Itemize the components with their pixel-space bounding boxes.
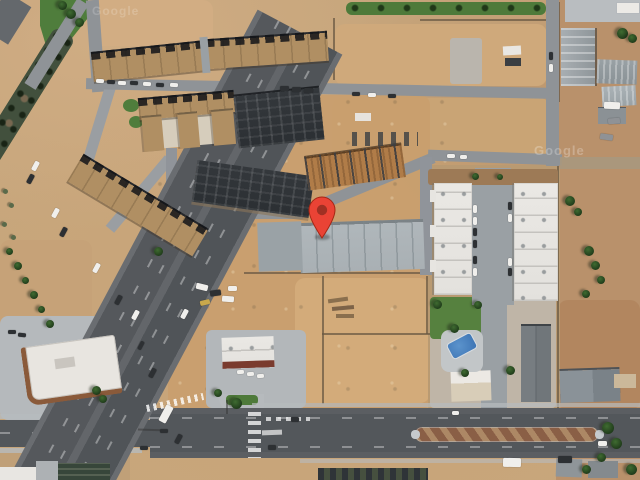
car xyxy=(31,160,40,171)
tree xyxy=(450,324,459,333)
restaurant-building xyxy=(221,336,274,369)
car xyxy=(92,262,101,273)
tree xyxy=(461,369,469,377)
parked-car xyxy=(473,256,477,264)
parked-car xyxy=(107,80,115,84)
street xyxy=(83,85,116,161)
car xyxy=(388,94,396,98)
parked-car xyxy=(96,79,104,83)
car xyxy=(368,93,376,97)
boundary-wall xyxy=(322,333,430,335)
house xyxy=(588,461,618,478)
car xyxy=(257,374,264,378)
satellite-map[interactable]: Google Google xyxy=(0,0,640,480)
boundary-wall xyxy=(426,276,428,334)
parked-car xyxy=(8,330,16,334)
trailer xyxy=(355,113,371,121)
parked-car xyxy=(508,258,512,266)
boundary-wall xyxy=(420,19,548,21)
tree xyxy=(582,290,590,298)
car xyxy=(237,370,244,374)
dirt-road xyxy=(560,157,640,169)
suv xyxy=(292,87,301,92)
tree xyxy=(231,398,242,409)
car xyxy=(59,226,68,237)
signal-pole-shadow xyxy=(226,400,228,414)
parked-car xyxy=(130,81,138,85)
greenhouse-rows xyxy=(318,468,428,480)
foundation-slabs xyxy=(257,221,303,272)
stop-line xyxy=(266,417,310,421)
tree xyxy=(565,196,575,206)
parked-car xyxy=(508,214,512,222)
car xyxy=(51,207,60,218)
tree xyxy=(602,422,614,434)
parked-car xyxy=(473,205,477,213)
building-wing xyxy=(141,114,164,152)
apartment-complex xyxy=(138,90,239,154)
dirt-lot xyxy=(88,0,213,46)
paving xyxy=(36,461,58,480)
desert-bush xyxy=(11,235,16,240)
dirt-lot xyxy=(335,24,547,86)
parked-car xyxy=(473,217,477,225)
suv xyxy=(304,88,313,93)
road-corner-patch xyxy=(0,0,31,45)
street xyxy=(546,0,559,166)
building-wing xyxy=(430,225,436,237)
car xyxy=(452,411,459,415)
suv xyxy=(280,86,289,91)
tree xyxy=(214,389,222,397)
desert-bush xyxy=(3,189,8,194)
machinery-row xyxy=(352,132,418,146)
tree xyxy=(497,174,503,180)
tree-band xyxy=(0,26,76,166)
house xyxy=(559,369,620,403)
nursery-rows xyxy=(56,463,110,480)
car xyxy=(26,173,35,184)
tree xyxy=(617,28,628,39)
lawn-strip xyxy=(346,2,546,15)
sidewalk xyxy=(252,403,640,407)
clubhouse-building xyxy=(521,326,551,402)
tree xyxy=(474,301,482,309)
parked-car xyxy=(118,81,126,85)
parked-car xyxy=(143,82,151,86)
palm-tree xyxy=(30,291,38,299)
car xyxy=(460,155,467,159)
lane-marking xyxy=(150,417,640,419)
car xyxy=(549,52,553,60)
crosswalk xyxy=(248,412,261,458)
desert-bush xyxy=(9,203,14,208)
tree xyxy=(574,208,582,216)
parked-car xyxy=(156,83,164,87)
tree xyxy=(506,366,515,375)
tree xyxy=(58,1,67,10)
tree xyxy=(66,9,76,19)
tree xyxy=(597,276,605,284)
palm-tree xyxy=(6,248,13,255)
lane-marking xyxy=(150,446,640,448)
tree xyxy=(591,261,600,270)
parked-car xyxy=(473,228,477,236)
palm-tree xyxy=(22,277,29,284)
building-wing xyxy=(211,108,236,146)
car xyxy=(598,441,607,446)
shed xyxy=(614,374,636,388)
truck xyxy=(558,456,572,463)
car xyxy=(140,446,148,450)
building-under-construction xyxy=(234,88,325,149)
desert-bush xyxy=(2,222,7,227)
tree xyxy=(584,246,594,256)
tree xyxy=(92,386,101,395)
road-marking xyxy=(262,430,282,436)
container xyxy=(505,58,521,66)
rooftop-unit xyxy=(54,357,75,370)
car xyxy=(549,64,553,72)
parked-car xyxy=(473,240,477,248)
car xyxy=(352,92,360,96)
road-median xyxy=(415,427,598,442)
palm-tree xyxy=(46,320,54,328)
building-wing xyxy=(177,111,200,149)
map-pin[interactable] xyxy=(307,196,337,240)
palm-tree xyxy=(38,306,45,313)
parked-car xyxy=(18,333,26,338)
tree xyxy=(597,453,606,462)
tree xyxy=(99,395,107,403)
car xyxy=(268,445,276,450)
staging-pad xyxy=(450,38,482,84)
parked-car xyxy=(508,268,512,276)
building-wing xyxy=(430,190,436,202)
tree xyxy=(75,18,84,27)
small-building xyxy=(450,370,491,401)
work-truck xyxy=(222,296,234,303)
trailer xyxy=(608,118,620,125)
apartment-building-white xyxy=(514,183,558,301)
tree xyxy=(611,438,622,449)
tree xyxy=(628,34,637,43)
trailer xyxy=(604,102,620,110)
parked-car xyxy=(170,83,178,87)
tree xyxy=(433,300,442,309)
car xyxy=(247,372,254,376)
car xyxy=(291,417,299,422)
trailer xyxy=(503,46,521,56)
palm-tree xyxy=(14,262,22,270)
work-truck xyxy=(228,286,237,291)
parked-car xyxy=(473,268,477,276)
tree xyxy=(472,173,479,180)
car xyxy=(447,154,455,158)
boundary-wall xyxy=(322,276,324,404)
boundary-wall xyxy=(244,272,430,274)
trailer xyxy=(616,2,640,14)
apartment-building xyxy=(91,40,208,82)
lawn xyxy=(123,99,139,112)
truck xyxy=(503,458,521,467)
tree xyxy=(582,465,591,474)
parked-car xyxy=(508,202,512,210)
building-wing xyxy=(430,260,436,272)
barn xyxy=(561,28,595,86)
tree xyxy=(626,464,637,475)
apartment-building-white xyxy=(434,183,472,295)
building xyxy=(0,467,36,480)
metal-shed xyxy=(597,59,638,84)
tree xyxy=(154,247,163,256)
median-nose xyxy=(411,430,420,439)
material-pile xyxy=(336,314,354,318)
car xyxy=(160,429,168,433)
